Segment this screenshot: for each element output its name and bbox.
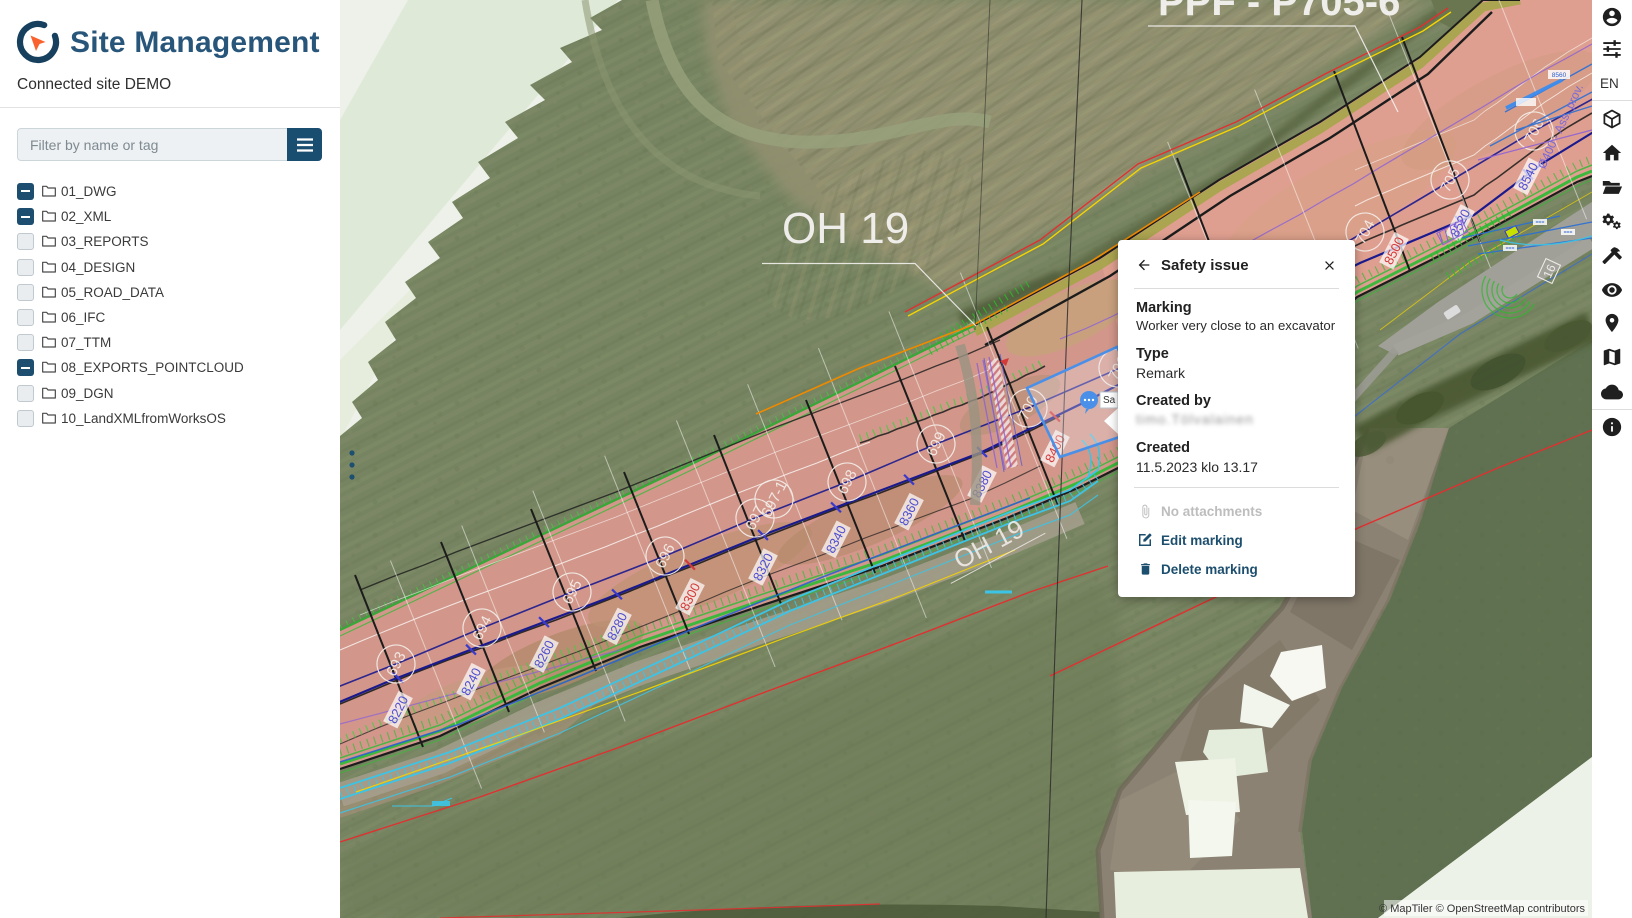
svg-text:Sa: Sa <box>1103 395 1116 406</box>
svg-text:PPF - P705-6: PPF - P705-6 <box>1158 0 1400 24</box>
svg-text:OH 19: OH 19 <box>782 204 909 253</box>
svg-text:8560: 8560 <box>1552 72 1567 79</box>
svg-text:===: === <box>1564 230 1573 236</box>
svg-text:===: === <box>1506 246 1515 252</box>
svg-text:===: === <box>1536 220 1545 226</box>
svg-text:© MapTiler © OpenStreetMap con: © MapTiler © OpenStreetMap contributors <box>1379 903 1585 915</box>
